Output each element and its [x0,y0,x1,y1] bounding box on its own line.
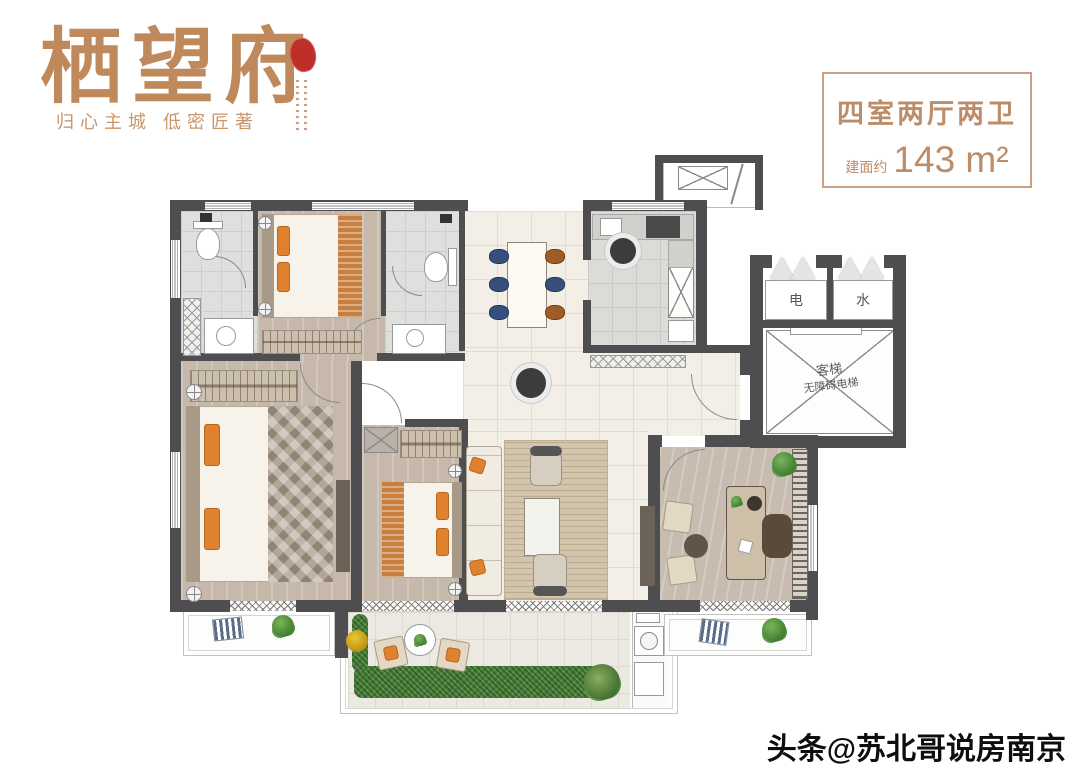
lamp-icon [258,302,272,316]
wall [459,200,465,351]
entry-cabinet [678,166,728,190]
wardrobe [190,370,298,402]
table-plant-icon [414,634,426,646]
sink-icon [406,329,424,347]
bath-fixture [440,214,452,223]
water-meter-room: 水 [833,280,893,320]
armchair [530,452,562,486]
coffee-table [524,498,560,556]
dining-chair [489,305,509,320]
person-figure [610,238,636,264]
ac-unit-cabinet [364,427,398,453]
person-figure [516,368,546,398]
window [171,240,180,298]
wall [405,419,463,427]
brand-title: 栖望府 [40,26,316,108]
dining-chair [489,249,509,264]
seal-text-column-icon [304,78,307,130]
office-chair [762,514,792,558]
laundry-sink [636,613,660,623]
seal-text-column-icon [296,78,299,130]
bed-runner [338,214,362,318]
wall [454,600,506,612]
pillow [436,492,449,520]
window-band [230,601,296,611]
kitchen-tall-cabinet [668,266,694,318]
pillow [277,226,290,256]
desk-lamp-icon [747,496,762,511]
kitchen-sink-icon [600,218,622,236]
area-prefix-label: 建面约 [845,157,887,177]
tv-console [336,480,350,572]
window [312,202,414,210]
lounge-cube-chair [662,500,694,534]
toilet-icon [196,228,220,260]
study-balcony-ledge [664,614,812,656]
wall [884,255,906,268]
ottoman [684,534,708,558]
wall [696,200,707,353]
pillow [204,424,220,466]
floorplan-poster: 栖望府 归心主城 低密匠著 四室两厅两卫 建面约 143 m² 电 水 客梯 无… [0,0,1080,780]
sink-icon [216,326,236,346]
brand-tagline: 归心主城 低密匠著 [56,108,259,134]
window [807,505,817,571]
striped-lounge-chair [212,616,244,641]
shoe-cabinet-band [590,355,686,368]
stove-icon [646,216,680,238]
window [612,202,684,210]
wall [893,266,906,448]
toilet-icon [424,252,448,282]
fridge-icon [668,320,694,342]
wall [583,345,707,353]
plant-icon [762,618,786,642]
armchair-back [530,446,562,456]
wall [755,155,763,210]
toilet-tank [448,248,457,286]
armchair [533,554,567,590]
wardrobe [262,330,362,354]
water-room-label: 水 [834,293,892,307]
lamp-icon [448,582,462,596]
elevator-shaft: 客梯 无障碍电梯 [766,330,894,434]
wall [750,266,763,448]
toilet-tank [193,221,223,229]
chair-cushion [383,645,400,662]
plant-icon [272,615,294,637]
wall [648,600,700,612]
master-balcony-ledge [183,610,335,656]
bookshelf [792,449,808,599]
bath-fixture [200,213,212,222]
window-band [362,601,454,611]
wall [707,345,752,353]
unit-rooms-label: 四室两厅两卫 [824,92,1030,131]
wall [377,353,465,361]
wardrobe [400,430,462,458]
wall [750,255,772,268]
window-band [700,601,790,611]
electric-meter-room: 电 [765,280,827,320]
wall [602,600,648,612]
tv-console [640,506,655,586]
balcony-hedge [354,666,602,698]
wall [827,266,833,324]
lamp-icon [186,384,202,400]
dining-chair [545,305,565,320]
wall [648,435,662,447]
wall [381,211,386,316]
wall [750,436,906,448]
wall [335,600,348,658]
wall [351,361,362,612]
bed-runner [382,482,404,578]
bed-blanket [268,406,333,582]
wall [816,255,842,268]
lamp-icon [186,586,202,602]
dining-table [507,242,547,328]
window [171,452,180,528]
desk-plant-icon [731,496,742,507]
striped-lounge-chair [698,618,729,646]
watermark: 头条@苏北哥说房南京 [767,724,1066,768]
palm-plant-icon [584,664,620,700]
lamp-icon [258,216,272,230]
lamp-icon [448,464,462,478]
unit-info-box: 四室两厅两卫 建面约 143 m² [822,72,1032,188]
washer-drum-icon [640,632,658,650]
electric-room-label: 电 [766,293,826,307]
vent-triangle-icon [860,257,884,279]
kitchen-counter [668,240,694,268]
wall [790,600,818,612]
chair-cushion [445,647,461,663]
bed-headboard [452,482,462,578]
wall [583,200,591,260]
dining-chair [545,249,565,264]
wall [253,211,258,316]
lounge-cube-chair [666,554,698,586]
dining-chair [489,277,509,292]
wall [170,600,230,612]
wall [296,600,362,612]
bed-headboard [186,406,200,582]
window [205,202,251,210]
plant-icon [772,452,796,476]
bedroom-3-door-arc [362,383,402,423]
balcony-slider-window [506,601,602,611]
area-value: 143 m² [893,139,1008,181]
pillow [436,528,449,556]
laundry-cabinet [634,662,664,696]
dining-chair [545,277,565,292]
armchair-back [533,586,567,596]
wall [655,155,763,163]
pillow [277,262,290,292]
vent-triangle-icon [791,257,815,279]
bath-storage-hatch [183,298,201,356]
pillow [204,508,220,550]
yellow-plant-icon [346,630,368,652]
